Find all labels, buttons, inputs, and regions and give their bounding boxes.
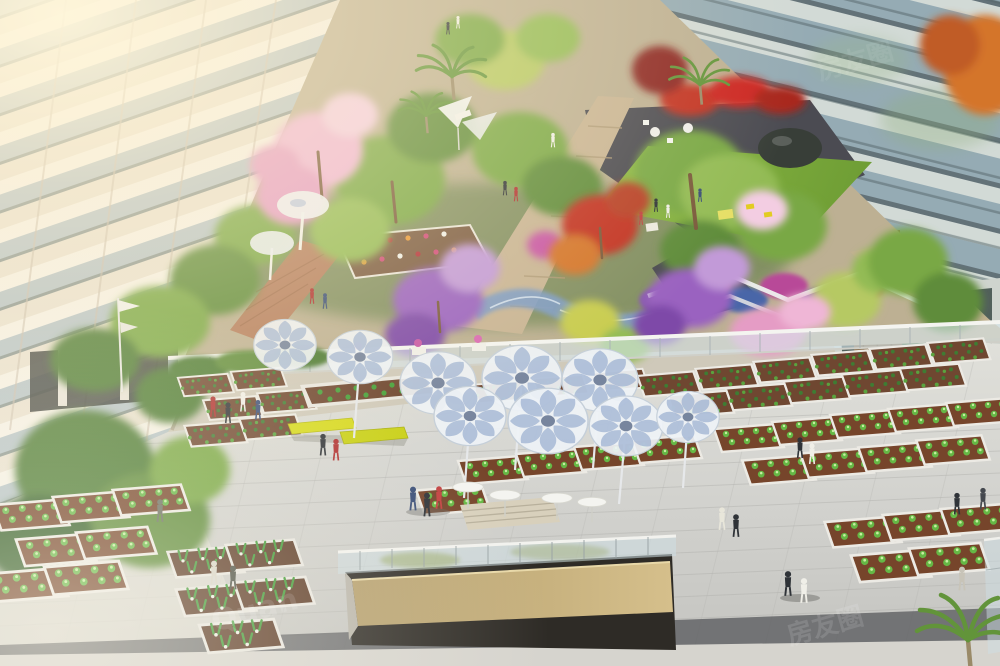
corner-glow [0,0,1000,666]
courtyard-rendering: Quan 房友圈 房友圈 [0,0,1000,666]
scene-canvas: Quan 房友圈 房友圈 [0,0,1000,666]
